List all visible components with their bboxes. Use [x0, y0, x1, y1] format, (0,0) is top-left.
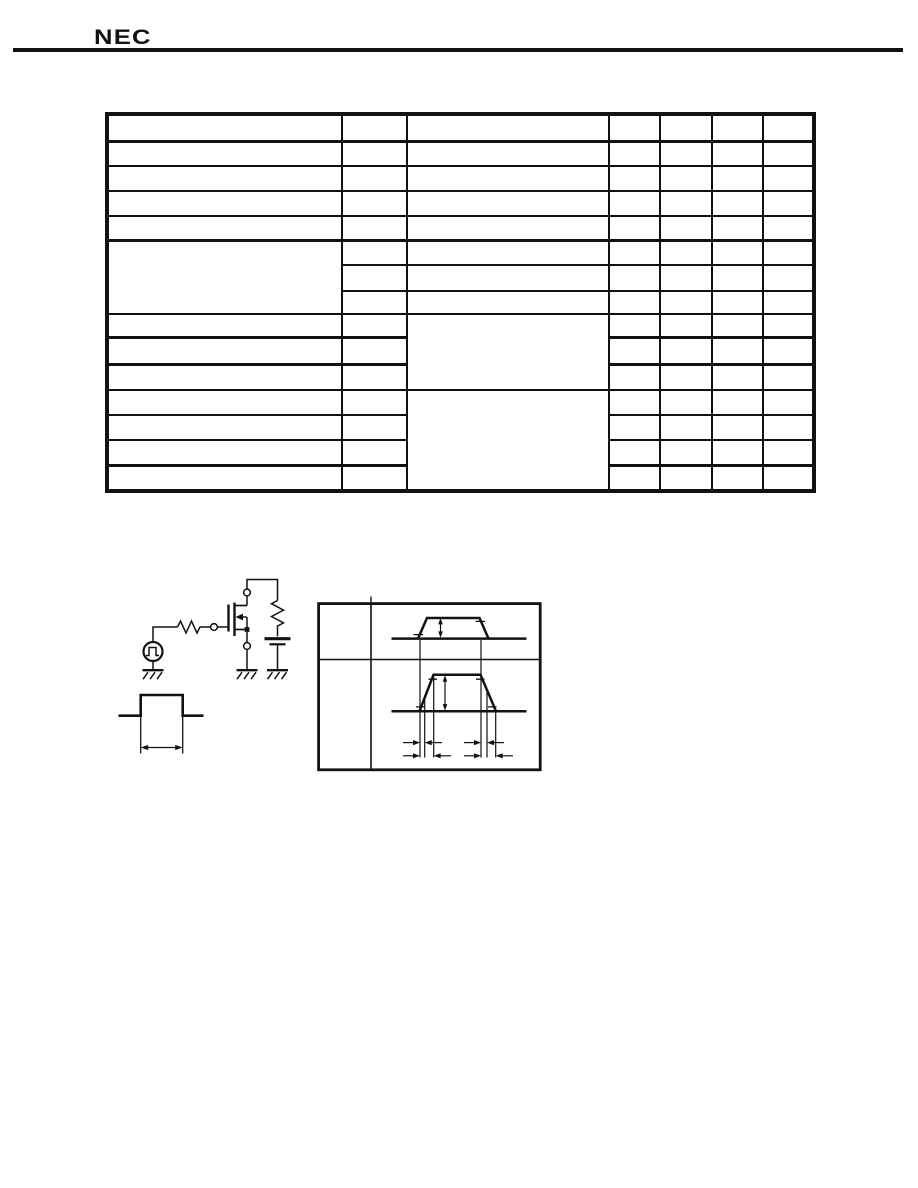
- cell: [660, 465, 712, 491]
- cell: [609, 440, 660, 465]
- cell: [107, 216, 342, 240]
- load-resistor-icon: [272, 601, 284, 637]
- mosfet-icon: [229, 603, 250, 637]
- cell: [609, 240, 660, 265]
- cell: [609, 291, 660, 314]
- cell: [107, 440, 342, 465]
- cell: [712, 240, 763, 265]
- cell: [763, 191, 814, 216]
- cell: [407, 240, 609, 265]
- cell: [107, 465, 342, 491]
- cell: [763, 314, 814, 337]
- cell: [407, 216, 609, 240]
- cell: [712, 191, 763, 216]
- drain-terminal: [244, 589, 251, 596]
- cell: [342, 465, 407, 491]
- table-row: [107, 216, 814, 240]
- cell: [609, 337, 660, 364]
- cell: [609, 415, 660, 440]
- cell: [763, 415, 814, 440]
- cell: [763, 465, 814, 491]
- cell: [342, 114, 407, 141]
- cell: [763, 166, 814, 191]
- cell: [609, 314, 660, 337]
- cell: [660, 141, 712, 166]
- cell: [342, 166, 407, 191]
- figures-canvas: [90, 565, 560, 790]
- cell: [660, 291, 712, 314]
- cell: [660, 415, 712, 440]
- cell: [407, 114, 609, 141]
- cell: [107, 415, 342, 440]
- cell: [763, 114, 814, 141]
- cell: [342, 240, 407, 265]
- cell: [763, 265, 814, 291]
- input-waveform: [392, 618, 527, 639]
- cell: [660, 166, 712, 191]
- header-rule: [13, 48, 903, 52]
- table-row: [107, 390, 814, 415]
- cell: [609, 465, 660, 491]
- cell: [342, 337, 407, 364]
- cell: [107, 141, 342, 166]
- spec-table: [105, 112, 816, 493]
- pulse-generator-icon: [144, 642, 163, 661]
- cell: [407, 291, 609, 314]
- cell: [107, 390, 342, 415]
- ground-icon: [237, 670, 258, 679]
- cell: [107, 337, 342, 364]
- pulse-width-arrow: [141, 745, 183, 750]
- cell: [712, 390, 763, 415]
- cell: [609, 364, 660, 390]
- cell: [660, 314, 712, 337]
- cell: [660, 114, 712, 141]
- nec-logo: NEC: [94, 26, 152, 50]
- cell: [660, 240, 712, 265]
- cell: [763, 240, 814, 265]
- ground-icon: [143, 670, 164, 679]
- cell: [342, 191, 407, 216]
- cell: [609, 114, 660, 141]
- table-row: [107, 141, 814, 166]
- cell: [763, 364, 814, 390]
- cell: [763, 216, 814, 240]
- cell: [342, 390, 407, 415]
- cell: [609, 216, 660, 240]
- cell: [660, 364, 712, 390]
- cell: [712, 265, 763, 291]
- cell: [107, 166, 342, 191]
- cell: [763, 390, 814, 415]
- gate-node-terminal: [211, 624, 218, 631]
- cell: [660, 191, 712, 216]
- cell: [342, 291, 407, 314]
- cell: [342, 440, 407, 465]
- cell: [712, 337, 763, 364]
- cell: [107, 364, 342, 390]
- cell: [660, 337, 712, 364]
- cell: [712, 114, 763, 141]
- cell: [712, 415, 763, 440]
- cell: [712, 166, 763, 191]
- battery-icon: [265, 639, 291, 645]
- pulse-waveform: [141, 695, 183, 717]
- cell: [763, 337, 814, 364]
- merged-cell: [407, 390, 609, 491]
- cell: [609, 166, 660, 191]
- cell: [609, 141, 660, 166]
- cell: [342, 364, 407, 390]
- pulse-width-figure: [119, 695, 204, 754]
- cell: [407, 191, 609, 216]
- merged-cell: [107, 240, 342, 314]
- cell: [342, 415, 407, 440]
- timing-guide-lines: [420, 640, 496, 758]
- wire: [153, 627, 178, 642]
- cell: [342, 216, 407, 240]
- cell: [660, 265, 712, 291]
- series-resistor-icon: [178, 621, 211, 633]
- cell: [407, 265, 609, 291]
- test-circuit: [143, 580, 291, 680]
- amplitude-arrow: [443, 675, 448, 710]
- datasheet-page: NEC: [0, 0, 918, 1188]
- wire: [247, 580, 278, 601]
- table-row: [107, 166, 814, 191]
- cell: [407, 141, 609, 166]
- cell: [107, 114, 342, 141]
- cell: [712, 465, 763, 491]
- cell: [660, 390, 712, 415]
- cell: [763, 141, 814, 166]
- cell: [712, 440, 763, 465]
- cell: [107, 191, 342, 216]
- source-terminal: [244, 643, 251, 650]
- cell: [107, 314, 342, 337]
- cell: [609, 191, 660, 216]
- cell: [342, 314, 407, 337]
- cell: [712, 314, 763, 337]
- cell: [407, 166, 609, 191]
- cell: [763, 440, 814, 465]
- merged-cell: [407, 314, 609, 390]
- cell: [660, 440, 712, 465]
- cell: [660, 216, 712, 240]
- table-row: [107, 314, 814, 337]
- output-waveform: [392, 675, 527, 711]
- cell: [763, 291, 814, 314]
- table-row: [107, 114, 814, 141]
- cell: [342, 265, 407, 291]
- table-row: [107, 240, 814, 265]
- table-row: [107, 191, 814, 216]
- cell: [342, 141, 407, 166]
- amplitude-arrow: [438, 618, 443, 638]
- cell: [712, 291, 763, 314]
- timing-diagram: [319, 597, 541, 770]
- cell: [609, 390, 660, 415]
- ground-icon: [267, 670, 288, 679]
- cell: [712, 216, 763, 240]
- cell: [609, 265, 660, 291]
- cell: [712, 141, 763, 166]
- cell: [712, 364, 763, 390]
